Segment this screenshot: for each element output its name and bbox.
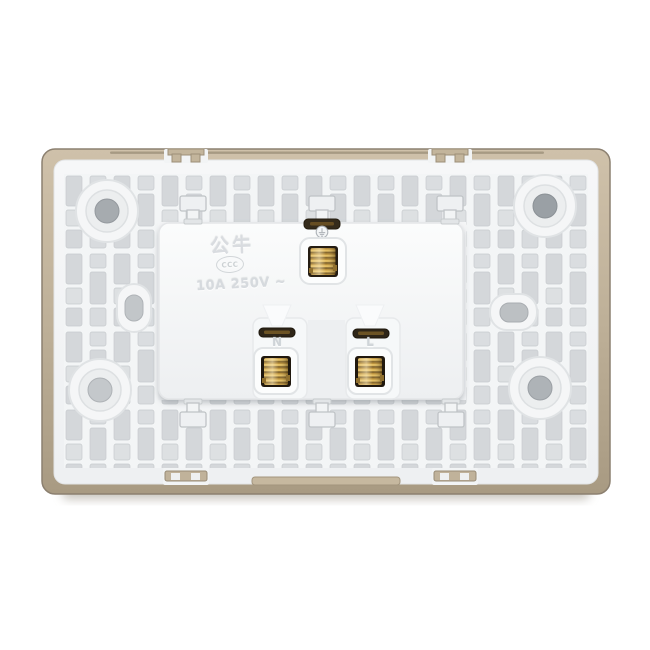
latch-clip-bottom-center [309, 399, 335, 427]
neutral-terminal [253, 305, 307, 399]
latch-clip-bottom-left [180, 399, 206, 427]
frame-groove-bottom [252, 477, 400, 485]
socket-rear-view [0, 0, 650, 650]
screw-boss-bottom-right [509, 357, 571, 419]
screw-boss-bottom-left [69, 359, 131, 421]
live-terminal [346, 305, 400, 399]
frame-clip-top-left [164, 149, 208, 163]
latch-clip-top-left [180, 196, 206, 224]
screw-boss-top-left [76, 180, 138, 242]
latch-clip-bottom-right [438, 399, 464, 427]
earth-icon [316, 226, 328, 238]
module-recess-between-terminals [308, 320, 345, 398]
live-terminal-label: L [357, 335, 383, 349]
brand-text: 公牛 [210, 230, 255, 259]
frame-clip-bottom-right [432, 468, 478, 485]
frame-clip-top-right [428, 149, 472, 163]
neutral-terminal-label: N [264, 335, 290, 349]
mounting-slot-left [117, 284, 151, 332]
mounting-slot-right [490, 294, 537, 330]
socket-rear-product-photo: 公牛 CCC 10A 250V ~ N L [0, 0, 650, 650]
frame-clip-bottom-left [163, 468, 209, 485]
screw-boss-top-right [514, 175, 576, 237]
ccc-text: CCC [221, 260, 238, 269]
latch-clip-top-right [437, 196, 463, 224]
